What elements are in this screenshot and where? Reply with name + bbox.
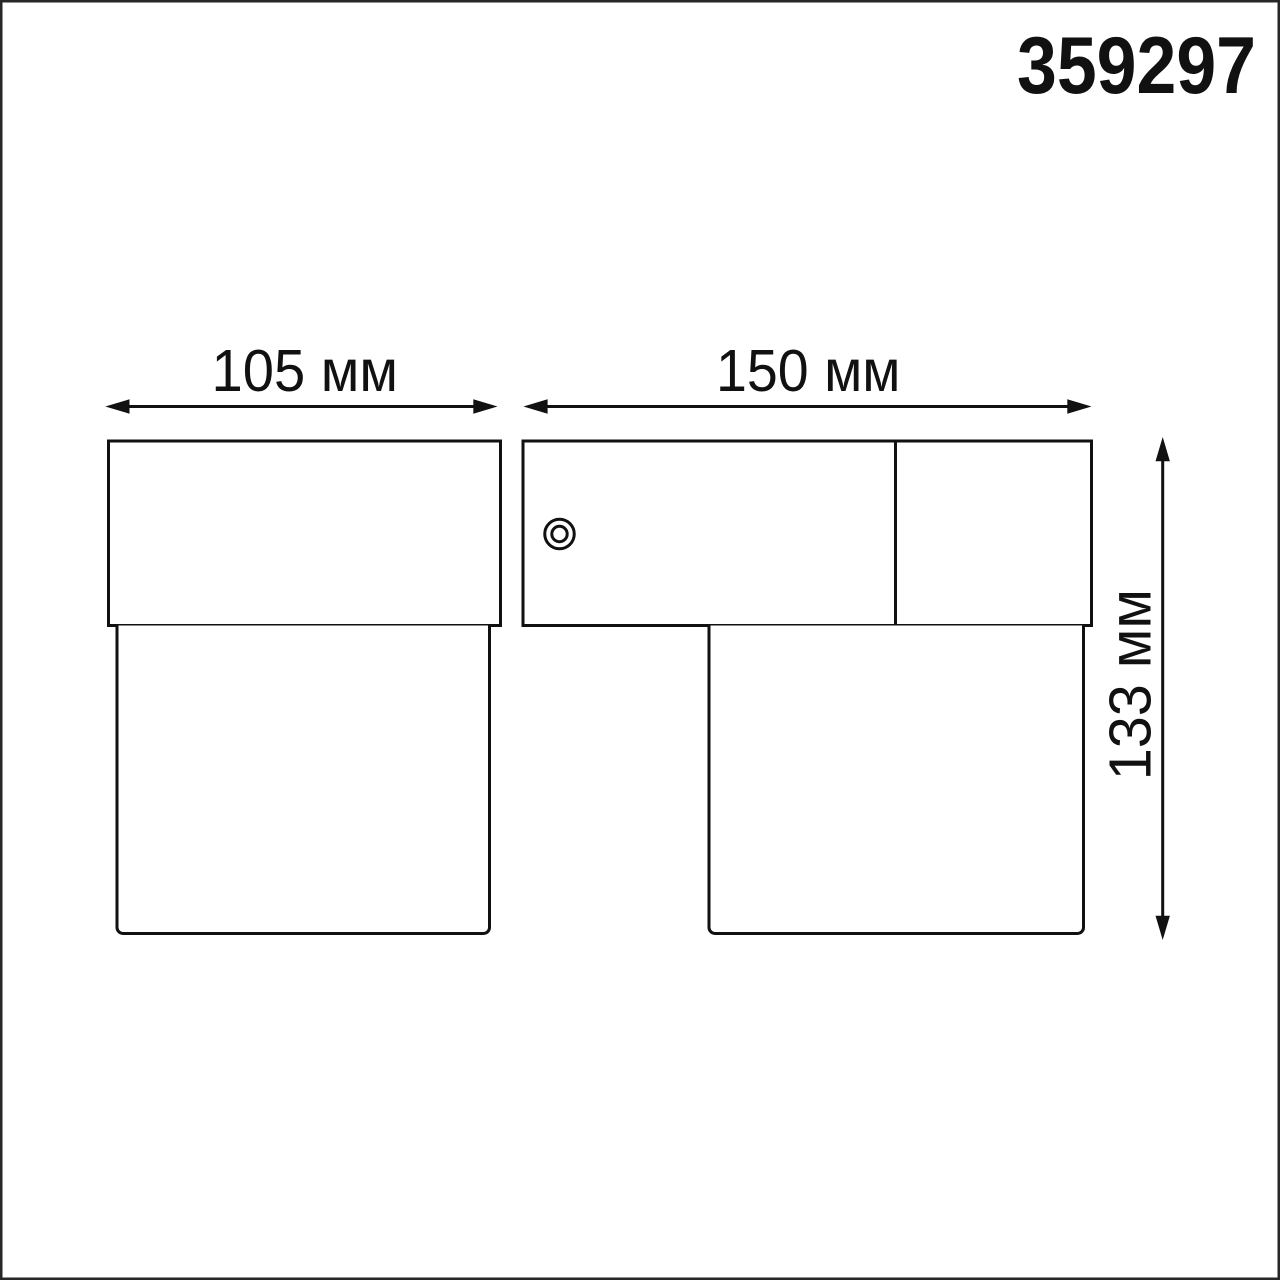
svg-text:133 мм: 133 мм: [1098, 589, 1164, 780]
svg-text:150 мм: 150 мм: [716, 338, 901, 404]
svg-text:359297: 359297: [1017, 21, 1256, 111]
svg-text:105 мм: 105 мм: [212, 338, 399, 404]
